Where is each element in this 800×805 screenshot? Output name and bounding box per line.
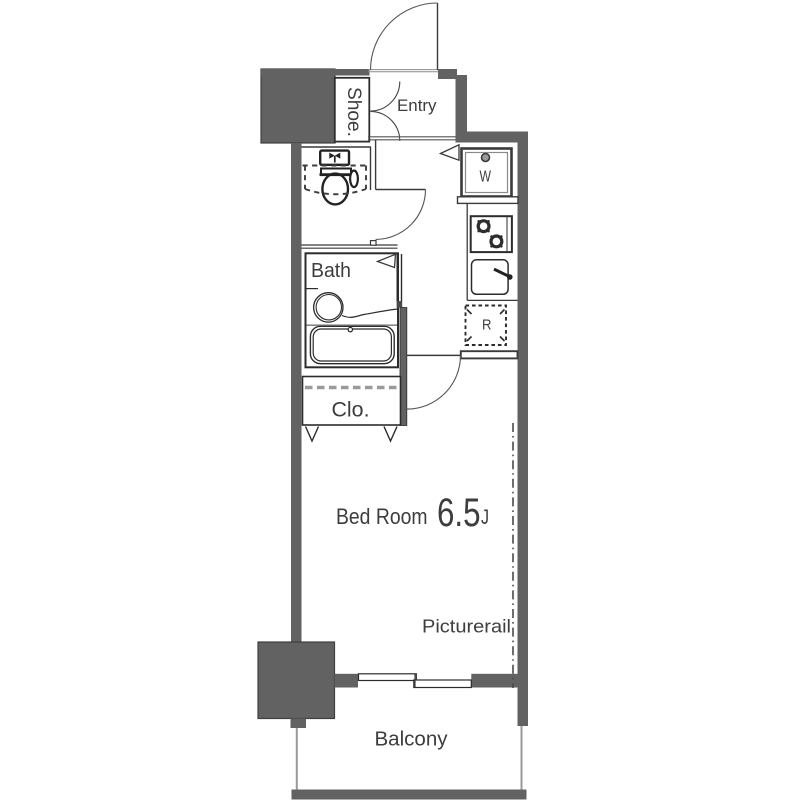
svg-text:Entry: Entry [397, 96, 437, 115]
svg-text:Bed Room: Bed Room [336, 504, 428, 529]
svg-text:J: J [481, 506, 489, 529]
svg-text:Bath: Bath [311, 259, 351, 282]
svg-text:R: R [482, 318, 492, 334]
svg-text:6.5: 6.5 [437, 491, 481, 535]
svg-text:W: W [480, 169, 492, 186]
svg-text:Balcony: Balcony [375, 729, 448, 751]
svg-text:Picturerail: Picturerail [422, 616, 511, 637]
svg-text:Shoe.: Shoe. [343, 87, 364, 137]
svg-text:Clo.: Clo. [332, 398, 370, 422]
